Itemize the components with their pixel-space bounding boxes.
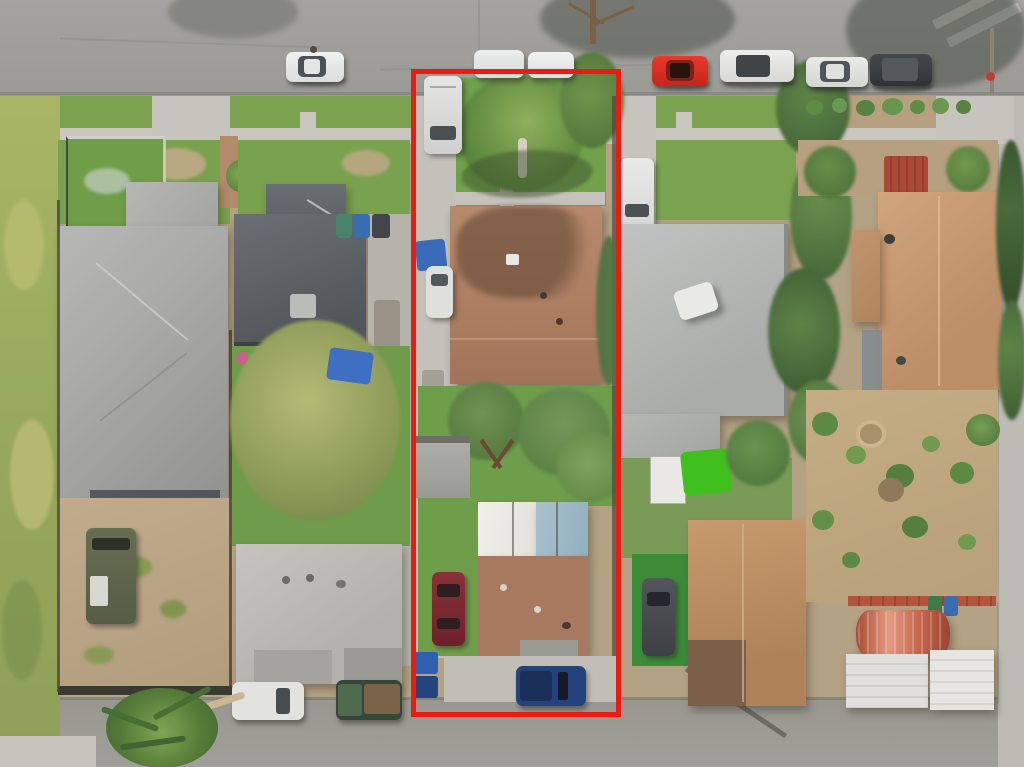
suv-sunroof <box>736 55 770 77</box>
stone-circle <box>856 420 886 448</box>
green-truck-load <box>364 684 400 714</box>
left-house-roof <box>58 226 228 498</box>
dry-patch <box>342 150 390 176</box>
far-right-house-wing <box>852 230 880 322</box>
rear-right-dark-section <box>688 640 746 706</box>
dirt-yard <box>58 498 234 688</box>
satellite-dish <box>896 356 906 365</box>
pale-house-garage <box>254 650 332 684</box>
parkway-shrub <box>910 100 925 114</box>
neighbor-gray-roof <box>620 224 788 416</box>
dark-suv-roof <box>882 58 918 81</box>
roof-ridge <box>938 196 940 386</box>
weed-patch <box>10 420 54 530</box>
parkway-shrub <box>932 98 949 114</box>
satellite-dish <box>884 234 895 244</box>
army-truck-door <box>90 576 108 606</box>
backyard-tree <box>726 420 790 486</box>
parkway-shrub <box>806 100 823 115</box>
aerial-photo <box>0 0 1024 767</box>
garden-flowers <box>84 168 130 194</box>
deck-stairs <box>862 330 882 390</box>
shrub <box>922 436 940 452</box>
trash-bin-teal <box>336 214 352 238</box>
shrub <box>812 510 834 530</box>
pickup-windshield <box>625 204 649 217</box>
white-pickup-driveway <box>620 158 654 230</box>
sage-tree <box>230 320 400 520</box>
roof-vent <box>336 580 346 588</box>
weed-patch <box>4 200 44 290</box>
red-deck <box>884 156 928 194</box>
weed-clump <box>160 600 186 618</box>
edge-tree <box>996 140 1024 310</box>
dark-car-glass <box>647 592 670 606</box>
neighbor-lawn <box>656 140 796 220</box>
bin-blue <box>944 596 958 616</box>
roof-vent <box>282 576 290 584</box>
shrub <box>958 534 976 550</box>
sidewalk-corner <box>0 736 96 767</box>
red-marker <box>986 72 995 81</box>
shrub <box>842 552 860 568</box>
front-tree <box>946 146 990 192</box>
shrub <box>902 516 928 538</box>
utility-pole <box>990 28 994 94</box>
dark-gray-car <box>642 578 675 656</box>
person-dot <box>310 46 317 53</box>
white-canopy <box>930 650 994 710</box>
bright-green-tarp <box>680 448 732 497</box>
mulch-circle <box>878 478 904 502</box>
white-canopy <box>846 654 928 708</box>
parkway-shrub <box>882 98 903 115</box>
trash-bin-dark <box>372 214 390 238</box>
sedan-roof <box>826 64 844 79</box>
parkway-shrub <box>956 100 971 114</box>
weed-patch <box>2 580 42 680</box>
edge-tree <box>998 300 1024 420</box>
white-pickup-bottom <box>232 682 304 720</box>
parkway-shrub <box>856 100 875 116</box>
sedan-roof <box>304 59 320 74</box>
red-fence <box>848 596 996 606</box>
pickup-cab-glass <box>276 688 290 714</box>
front-tree <box>804 146 856 198</box>
fence <box>57 200 60 692</box>
roof-vent <box>306 574 314 582</box>
property-boundary-outline <box>411 69 621 717</box>
shrub <box>812 412 838 436</box>
trash-bin-blue <box>354 214 370 238</box>
palm-crown <box>106 688 218 767</box>
green-truck-cab <box>338 684 362 716</box>
big-round-shrub <box>966 414 1000 446</box>
army-truck-window <box>92 538 130 550</box>
shrub <box>950 462 974 484</box>
blue-tarp <box>326 347 374 385</box>
left-house-eave <box>90 490 220 498</box>
tall-tree <box>768 268 840 394</box>
hvac-unit <box>290 294 316 318</box>
weed-clump <box>84 646 114 664</box>
roof-ridge <box>742 524 744 702</box>
shrub <box>846 446 866 464</box>
pink-toy <box>236 352 248 364</box>
parkway-shrub <box>832 98 847 113</box>
red-car-glass-dark <box>670 63 690 78</box>
